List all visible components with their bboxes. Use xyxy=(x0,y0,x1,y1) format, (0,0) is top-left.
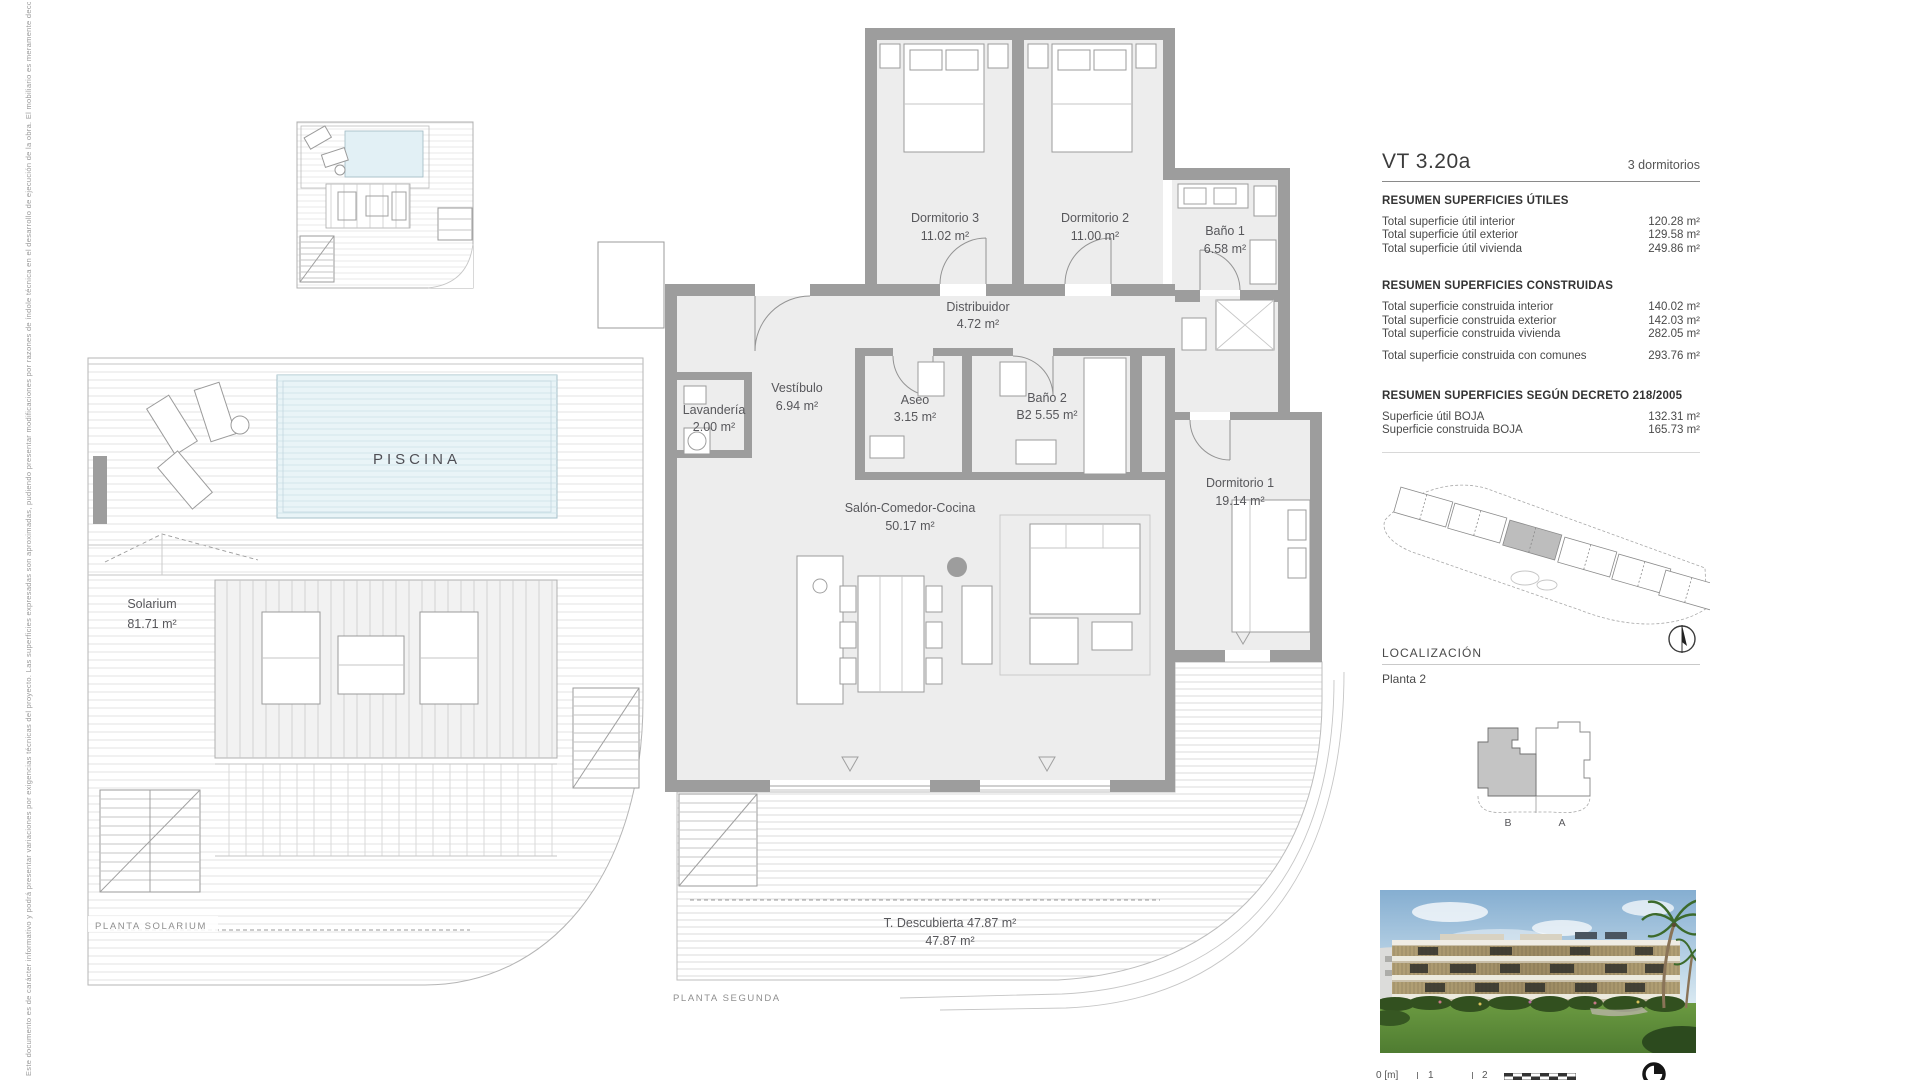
building-photo xyxy=(1380,890,1696,1053)
keyplan-unit-b-label: B xyxy=(1504,817,1511,829)
room-area: 6.94 m² xyxy=(776,399,818,413)
row-label: Total superficie útil interior xyxy=(1382,216,1515,229)
main-floor-plan: Dormitorio 3 11.02 m² Dormitorio 2 11.00… xyxy=(573,28,1344,1010)
summary-row: Total superficie útil exterior129.58 m² xyxy=(1382,229,1700,242)
room-label: Salón-Comedor-Cocina xyxy=(845,501,976,515)
site-plan xyxy=(1375,458,1710,663)
unit-type: 3 dormitorios xyxy=(1628,158,1700,174)
row-label: Total superficie útil exterior xyxy=(1382,229,1518,242)
localizacion-heading: LOCALIZACIÓN xyxy=(1382,646,1700,665)
room-label: Distribuidor xyxy=(946,300,1009,314)
graphic-scale xyxy=(1504,1073,1576,1080)
row-label: Total superficie construida interior xyxy=(1382,301,1553,314)
row-value: 120.28 m² xyxy=(1648,216,1700,229)
row-label: Total superficie construida con comunes xyxy=(1382,350,1587,363)
row-label: Superficie útil BOJA xyxy=(1382,411,1484,424)
room-area: 19.14 m² xyxy=(1215,494,1264,508)
info-panel: VT 3.20a 3 dormitorios RESUMEN SUPERFICI… xyxy=(1382,150,1700,453)
room-label: T. Descubierta 47.87 m² xyxy=(884,916,1017,930)
main-building xyxy=(1392,932,1680,1004)
summary-row: Total superficie construida interior140.… xyxy=(1382,301,1700,314)
solarium-plan: PISCINA Solarium 81.71 m² xyxy=(88,358,643,985)
caption-planta-segunda: PLANTA SEGUNDA xyxy=(673,993,781,1004)
room-area: 2.00 m² xyxy=(693,420,735,434)
row-value: 142.03 m² xyxy=(1648,315,1700,328)
room-label-piscina: PISCINA xyxy=(373,451,461,468)
mini-solarium-plan xyxy=(297,122,473,288)
summary-row: Superficie útil BOJA132.31 m² xyxy=(1382,411,1700,424)
section-heading: RESUMEN SUPERFICIES SEGÚN DECRETO 218/20… xyxy=(1382,390,1700,402)
room-area: 4.72 m² xyxy=(957,317,999,331)
summary-row: Total superficie construida vivienda282.… xyxy=(1382,328,1700,341)
room-label: Dormitorio 2 xyxy=(1061,211,1129,225)
room-label: Solarium xyxy=(127,597,176,611)
row-label: Superficie construida BOJA xyxy=(1382,424,1523,437)
summary-row: Total superficie construida exterior142.… xyxy=(1382,315,1700,328)
row-value: 165.73 m² xyxy=(1648,424,1700,437)
caption-planta-solarium: PLANTA SOLARIUM xyxy=(95,921,207,932)
room-label: Baño 2 xyxy=(1027,391,1067,405)
row-value: 282.05 m² xyxy=(1648,328,1700,341)
summary-row: Total superficie útil vivienda249.86 m² xyxy=(1382,243,1700,256)
scale-zero: 0 [m] xyxy=(1376,1070,1398,1080)
developer-logo-icon xyxy=(1640,1060,1668,1080)
room-area: 50.17 m² xyxy=(885,519,934,533)
room-label: Dormitorio 1 xyxy=(1206,476,1274,490)
keyplan-unit-a xyxy=(1536,722,1590,796)
key-plan: B A xyxy=(1462,712,1602,834)
unit-title-row: VT 3.20a 3 dormitorios xyxy=(1382,150,1700,182)
room-area: 81.71 m² xyxy=(127,617,176,631)
mini-pool xyxy=(345,131,423,177)
room-area: 6.58 m² xyxy=(1204,242,1246,256)
summary-row: Superficie construida BOJA165.73 m² xyxy=(1382,424,1700,437)
unit-code: VT 3.20a xyxy=(1382,150,1471,174)
row-label: Total superficie construida vivienda xyxy=(1382,328,1560,341)
keyplan-unit-a-label: A xyxy=(1558,817,1565,829)
keyplan-unit-b-highlight xyxy=(1478,728,1536,796)
plan-sheet: Este documento es de carácter informativ… xyxy=(0,0,1920,1080)
row-label: Total superficie construida exterior xyxy=(1382,315,1557,328)
row-label: Total superficie útil vivienda xyxy=(1382,243,1522,256)
room-label: Lavandería xyxy=(683,403,746,417)
room-label: Aseo xyxy=(901,393,930,407)
scale-two: 2 xyxy=(1482,1070,1488,1080)
room-area: 47.87 m² xyxy=(925,934,974,948)
room-label: Dormitorio 3 xyxy=(911,211,979,225)
room-area: 11.02 m² xyxy=(921,229,969,243)
column xyxy=(947,557,967,577)
section-heading: RESUMEN SUPERFICIES CONSTRUIDAS xyxy=(1382,280,1700,292)
summary-row: Total superficie útil interior120.28 m² xyxy=(1382,216,1700,229)
row-value: 129.58 m² xyxy=(1648,229,1700,242)
scale-bar: 0 [m] 1 2 xyxy=(1372,1064,1702,1080)
room-label: Vestíbulo xyxy=(771,381,822,395)
scale-one: 1 xyxy=(1428,1070,1434,1080)
row-value: 293.76 m² xyxy=(1648,350,1700,363)
summary-row: Total superficie construida con comunes2… xyxy=(1382,350,1700,363)
room-area: 3.15 m² xyxy=(894,410,936,424)
entrance-landing xyxy=(598,242,664,328)
localizacion-block: LOCALIZACIÓN Planta 2 xyxy=(1382,646,1700,686)
section-heading: RESUMEN SUPERFICIES ÚTILES xyxy=(1382,195,1700,207)
divider xyxy=(1382,452,1700,453)
room-label: Baño 1 xyxy=(1205,224,1245,238)
room-area: 11.00 m² xyxy=(1071,229,1119,243)
row-value: 249.86 m² xyxy=(1648,243,1700,256)
localizacion-value: Planta 2 xyxy=(1382,672,1700,686)
room-area: B2 5.55 m² xyxy=(1016,408,1077,422)
row-value: 132.31 m² xyxy=(1648,411,1700,424)
row-value: 140.02 m² xyxy=(1648,301,1700,314)
